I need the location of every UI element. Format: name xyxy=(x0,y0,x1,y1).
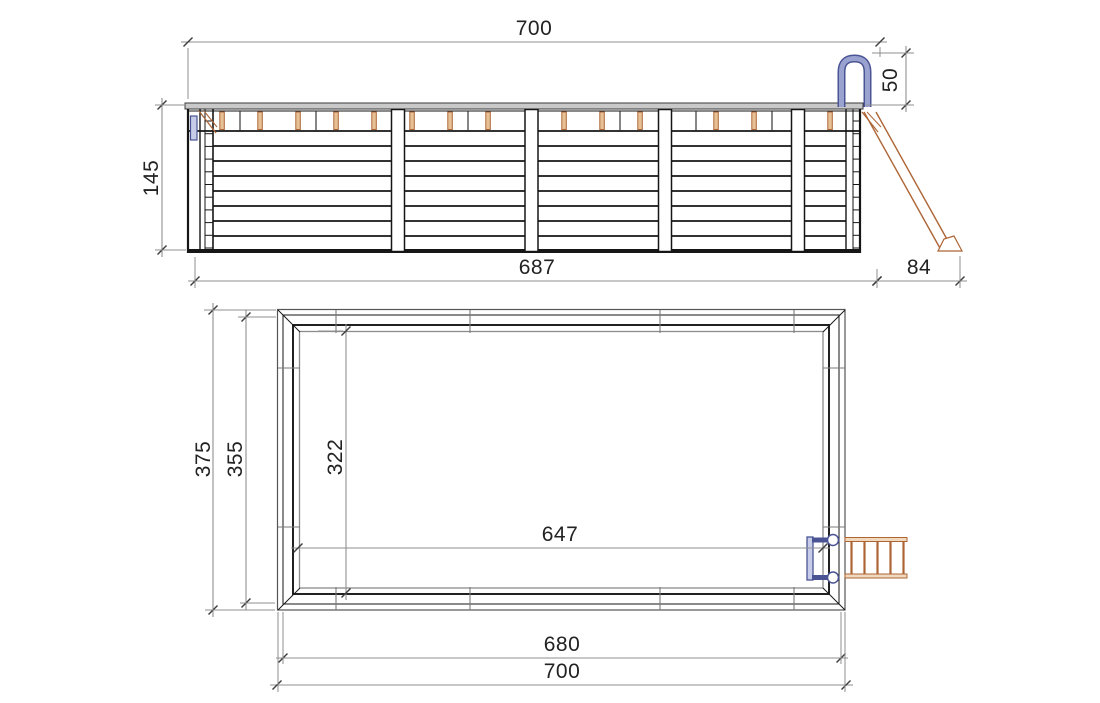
rail-spacer xyxy=(600,112,605,130)
ladder-hook xyxy=(867,112,881,127)
rail-spacer xyxy=(638,112,643,130)
plan-frame-edge xyxy=(283,315,839,604)
corner-mitre xyxy=(823,588,845,610)
inner-ladder-stringer xyxy=(807,537,813,580)
corner-mitre xyxy=(823,310,845,332)
rail-spacer xyxy=(296,112,301,130)
dim-label-interior-depth: 322 xyxy=(324,439,347,476)
ladder-rail xyxy=(864,112,941,250)
wall-post xyxy=(659,110,672,252)
wall-post xyxy=(392,110,405,252)
plan-water-edge xyxy=(300,332,824,589)
dim-label-overall-width: 700 xyxy=(516,17,553,40)
rail-spacer xyxy=(372,112,377,130)
rail-spacer xyxy=(410,112,415,130)
rail-spacer xyxy=(486,112,491,130)
dim-label-wall-height: 145 xyxy=(140,160,163,197)
ladder-foot xyxy=(938,236,962,251)
rail-spacer xyxy=(828,112,833,130)
top-cap-rail xyxy=(185,103,863,109)
dim-label-frame-depth: 355 xyxy=(224,441,247,478)
dim-label-ladder-offset: 84 xyxy=(907,256,931,279)
handrail xyxy=(842,59,868,108)
corner-mitre xyxy=(278,588,300,610)
rail-spacer xyxy=(562,112,567,130)
outer-ladder-rail xyxy=(845,574,907,578)
rail-spacer xyxy=(448,112,453,130)
dim-label-wall-length: 687 xyxy=(519,256,556,279)
plan-view xyxy=(278,310,908,611)
handrail-post xyxy=(828,535,839,546)
rail-spacer xyxy=(258,112,263,130)
outer-ladder-rail xyxy=(845,538,907,542)
rail-spacer xyxy=(752,112,757,130)
pool-technical-drawing: 700 50 145 687 84 375 355 322 647 680 70… xyxy=(0,0,1100,703)
rail-spacer xyxy=(220,112,225,130)
dim-label-overall-length: 700 xyxy=(544,660,581,683)
dim-label-frame-length: 680 xyxy=(544,633,581,656)
skimmer-box xyxy=(191,116,198,140)
corner-mitre xyxy=(278,310,300,332)
handrail-post xyxy=(828,572,839,583)
dim-label-handrail-height: 50 xyxy=(879,68,902,92)
rail-spacer xyxy=(714,112,719,130)
wall-post xyxy=(525,110,538,252)
bottom-rail xyxy=(188,249,860,253)
ladder-rail xyxy=(876,112,953,250)
wall-post xyxy=(792,110,805,252)
plan-inner-wall xyxy=(293,325,829,594)
dim-label-interior-length: 647 xyxy=(542,523,579,546)
dim-label-overall-depth: 375 xyxy=(192,441,215,478)
rail-spacer xyxy=(334,112,339,130)
technical-drawing-canvas: 700 50 145 687 84 375 355 322 647 680 70… xyxy=(0,0,1100,703)
plan-outer-edge xyxy=(278,310,846,611)
elevation-view xyxy=(185,59,962,254)
